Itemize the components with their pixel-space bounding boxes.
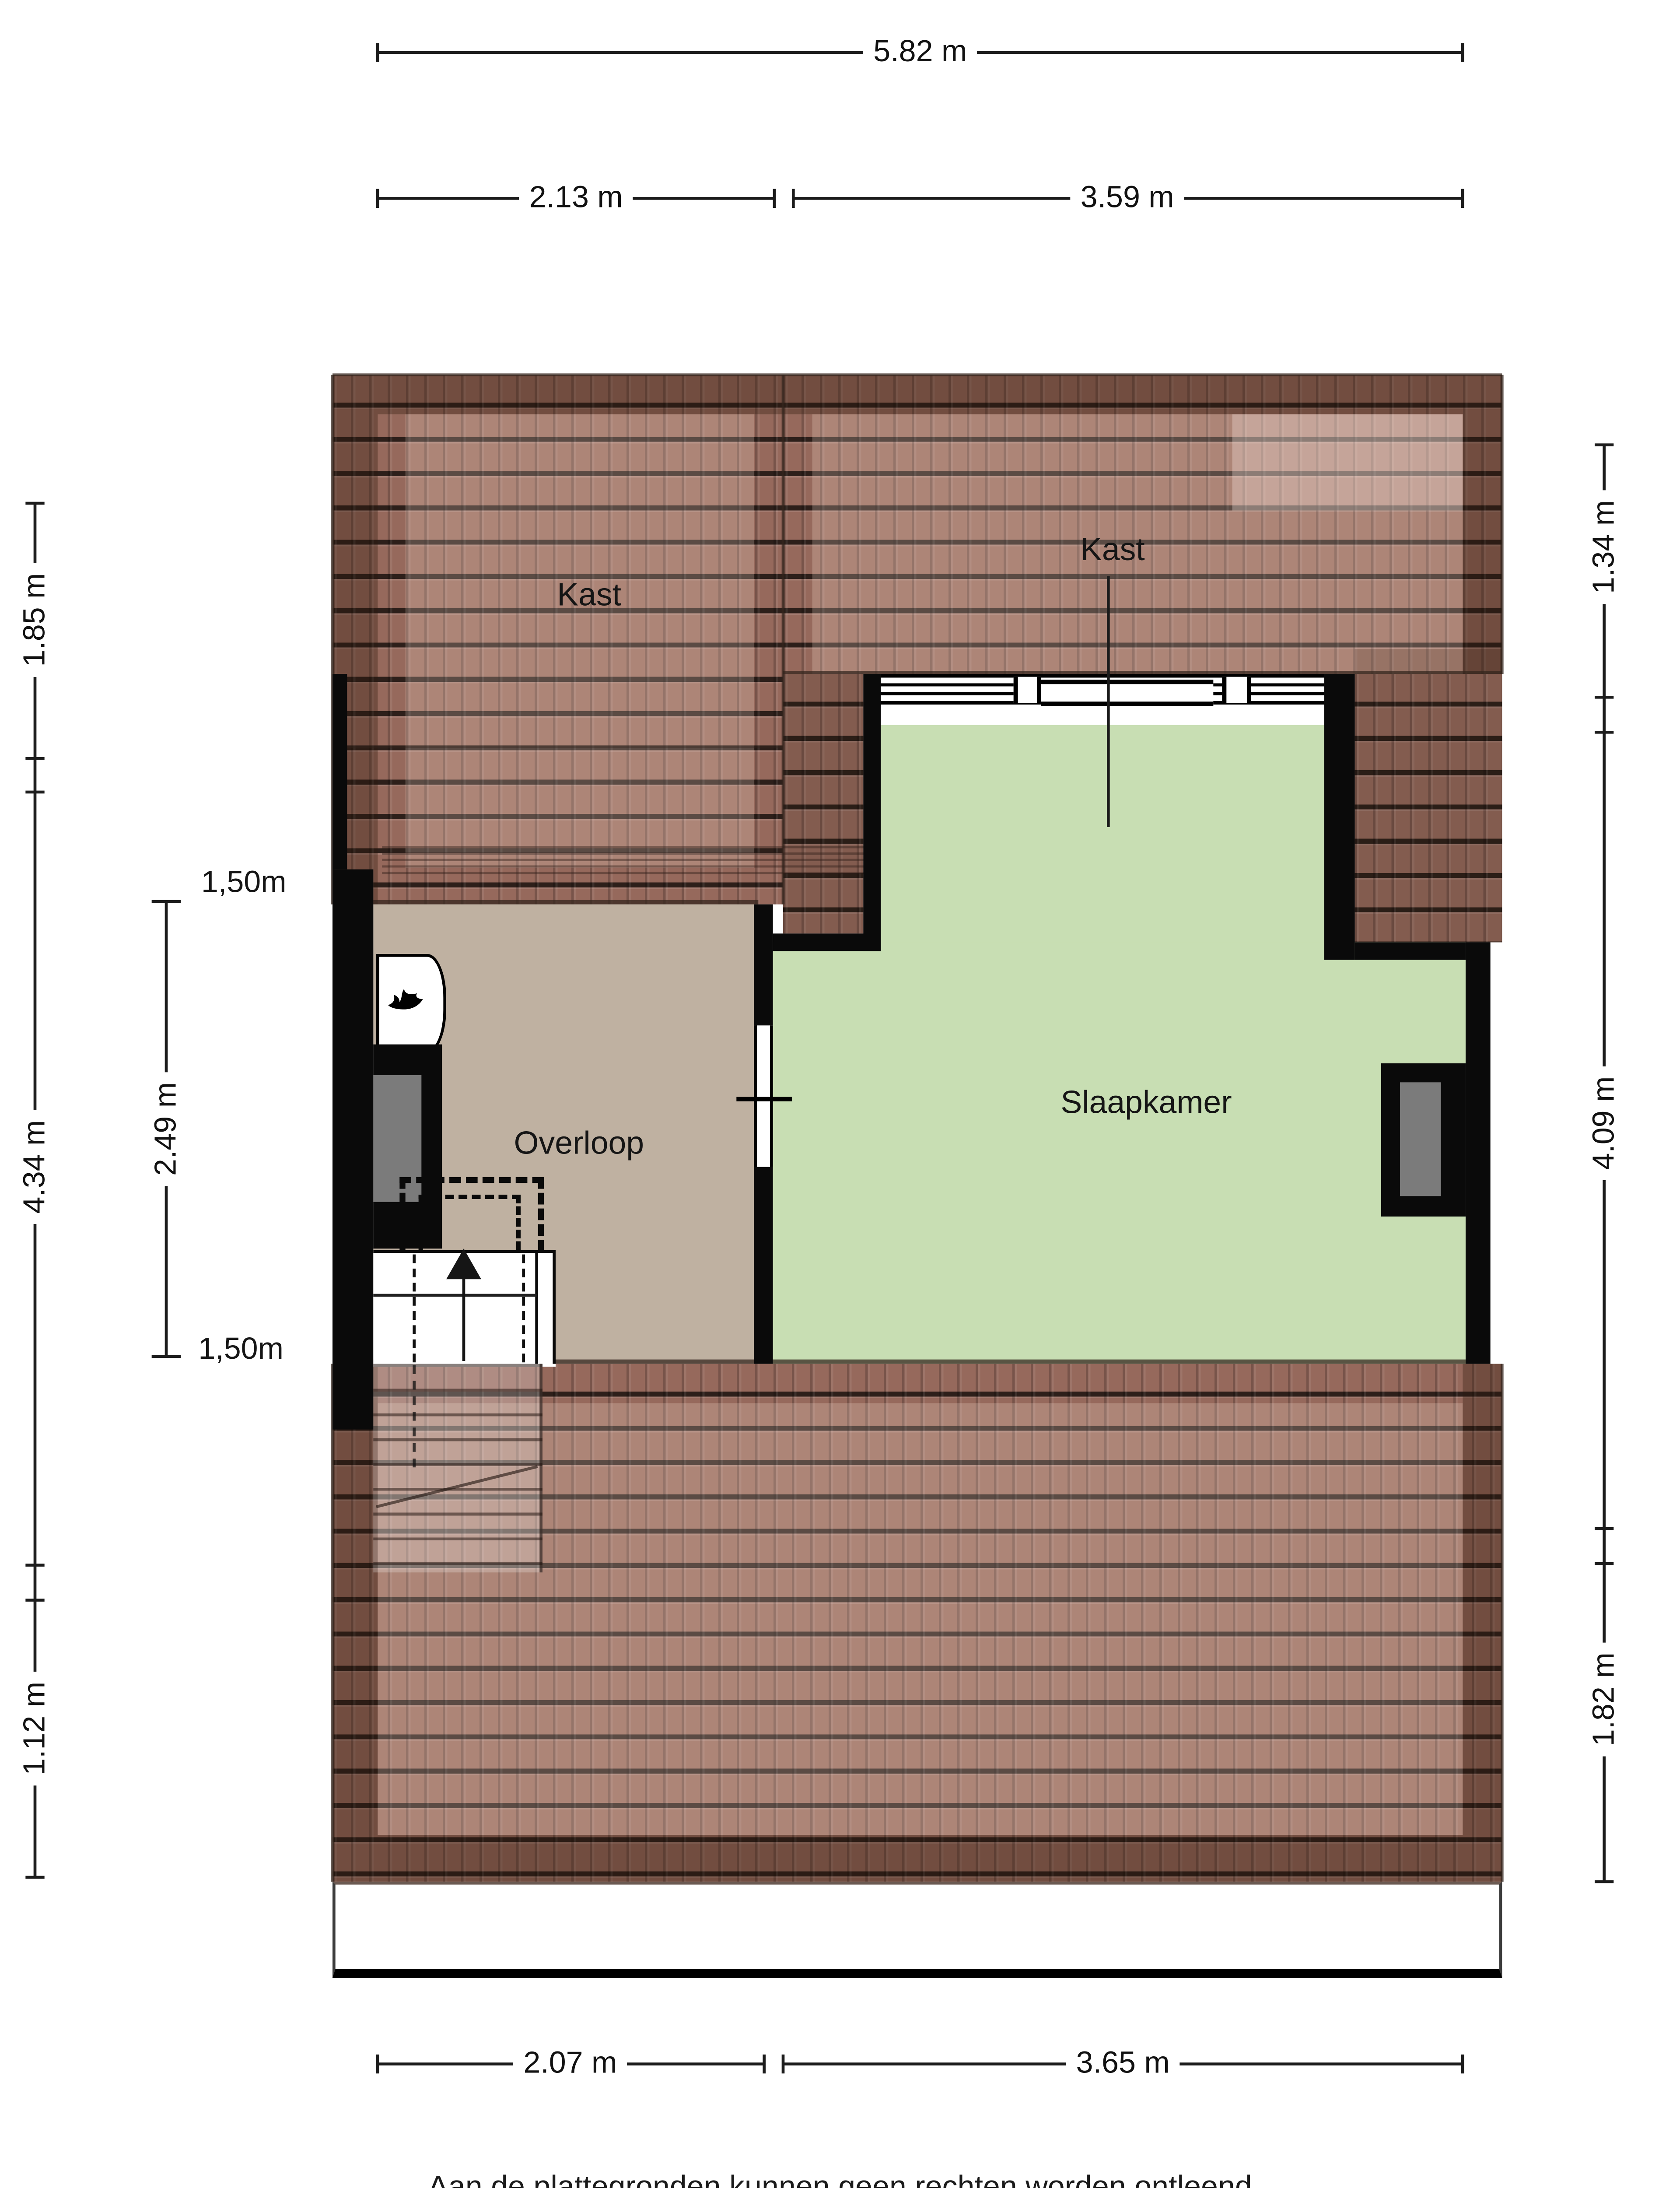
stair-dashed-line-left [413,1255,416,1363]
dim-label-overloop-depth: 2.49 m [148,1072,184,1186]
dormer-wall-right [1324,674,1355,960]
dim-tick [25,1599,44,1602]
roof-seam-1m50-left [332,745,783,748]
up-arrow-icon [446,1248,481,1279]
dim-tick [1595,1880,1613,1883]
headroom-label-bottom: 1,50m [198,1334,283,1364]
cheek-right-shadow [1355,649,1502,942]
dim-label-bottom-left: 2.07 m [513,2045,627,2081]
stair-arrow-stem [462,1278,465,1361]
dim-tick [773,189,776,208]
dim-tick [1595,443,1613,446]
slaapkamer-floor-upper [881,725,1324,973]
slaapkamer-floor-main [773,942,1466,1364]
floorplan-stage: Kast Kast Slaapkamer Overloop 5.82 m 2.1… [0,0,1680,2188]
footer-disclaimer: Aan de plattegronden kunnen geen rechten… [0,2169,1680,2188]
roof-overhang-right-top [1463,414,1502,674]
outer-wall-left [332,870,373,1430]
dim-tick [1461,2055,1464,2073]
dim-tick [25,757,44,760]
dim-label-left-bottom: 1.12 m [17,1672,53,1786]
stair-tread-line [373,1294,536,1297]
roof-overhang-left-bottom [332,1364,378,1882]
dim-tick [1595,696,1613,699]
boiler-unit [376,954,446,1053]
dim-label-left-middle: 4.34 m [17,1110,53,1224]
roof-overhang-top [332,375,1502,414]
dim-tick [376,2055,379,2073]
roof-overhang-right-bottom [1463,1364,1502,1882]
dim-tick [25,1564,44,1567]
outer-wall-right [1466,942,1491,1364]
window-mullion-left [1014,676,1041,702]
roof-right-edge-top [1501,375,1503,674]
stairwell-ghost-under-roof [373,1364,542,1573]
headroom-label-top: 1,50m [201,867,287,898]
dim-tick [763,2055,766,2073]
dim-tick [152,900,181,903]
stairwell-ghost-right-edge [539,1364,542,1573]
window-mullion-right [1222,676,1251,702]
dim-label-right-middle: 4.09 m [1586,1066,1622,1180]
flame-icon [386,988,424,1017]
window-sill-strip [881,705,1324,725]
roof-left-edge-bottom [331,1364,333,1882]
attic-floor-ghost-lines [382,846,875,878]
kast-right-floor-highlight [1232,414,1463,511]
room-label-kast-right: Kast [1081,534,1145,566]
dim-tick [1461,189,1464,208]
slaapkamer-step-wall-left [773,933,881,951]
dim-tick [1595,1562,1613,1565]
dim-tick [25,791,44,794]
slaapkamer-bottom-edge [773,1360,1466,1364]
slaapkamer-step-wall-right [1355,942,1466,960]
stairwell-right-wall-inner [535,1250,538,1364]
room-label-overloop: Overloop [514,1128,644,1160]
dormer-face-edge [783,671,1502,674]
dim-tick [1595,731,1613,734]
partition-door-symbol [754,1025,773,1167]
window-middle-pane [1041,679,1213,705]
room-label-kast-left: Kast [557,579,621,611]
chimney-right-inset [1400,1082,1441,1196]
overloop-top-edge [373,900,758,905]
eaves-strip [332,1882,1502,1978]
dim-tick [376,43,379,62]
partition-door-tick [736,1097,792,1101]
stairwell-right-wall-outer [553,1250,556,1364]
dim-tick [25,502,44,505]
floorplan-page: Kast Kast Slaapkamer Overloop 5.82 m 2.1… [0,0,1680,2188]
dim-tick [25,1876,44,1879]
roof-top-edge [332,373,1502,375]
dim-label-top-right: 3.59 m [1070,179,1184,216]
roof-overhang-bottom [378,1835,1463,1882]
dormer-wall-left [863,674,881,951]
dim-label-top-left: 2.13 m [519,179,633,216]
dim-tick [782,2055,785,2073]
room-label-slaapkamer: Slaapkamer [1060,1087,1232,1119]
stair-dashed-line-right [522,1255,525,1363]
stairwell-ghost-dashed [413,1365,416,1467]
dim-tick [152,1355,181,1358]
stair-headroom-outline-inner [419,1195,521,1250]
kast-left-floor-ghost [406,414,754,868]
dim-tick [1461,43,1464,62]
dim-label-right-bottom: 1.82 m [1586,1642,1622,1757]
dim-tick [792,189,795,208]
window-center-leader-line [1107,576,1109,827]
dim-label-top-total: 5.82 m [863,34,977,70]
dim-label-bottom-right: 3.65 m [1066,2045,1180,2081]
outer-wall-left-upper [332,674,347,870]
dim-tick [376,189,379,208]
cheek-left-shadow [783,674,863,933]
dim-tick [1595,1527,1613,1530]
dim-label-left-top: 1.85 m [17,563,53,677]
dim-label-right-top: 1.34 m [1586,490,1622,604]
roof-right-edge-bottom [1501,1364,1503,1882]
roof-seam-vertical [782,375,785,905]
